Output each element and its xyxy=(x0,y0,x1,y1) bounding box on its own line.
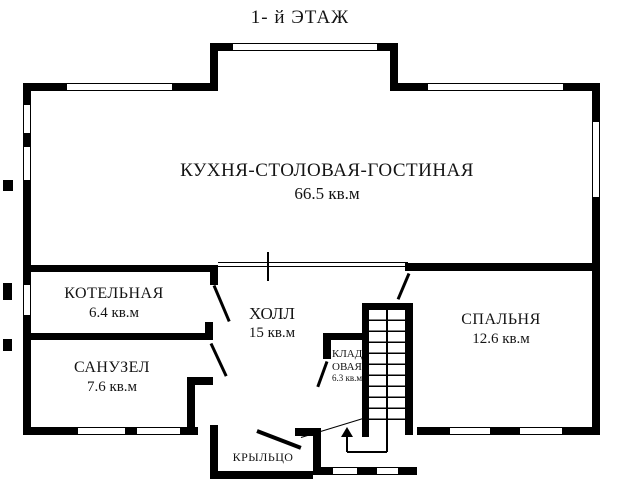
storage-west-wall xyxy=(323,333,331,359)
bay-side-wall-left xyxy=(210,43,218,91)
room-label-porch: КРЫЛЬЦО xyxy=(213,450,313,465)
left-window-3 xyxy=(23,285,31,315)
room-area-hall: 15 кв.м xyxy=(222,324,322,343)
floor-plan: 1- й ЭТАЖ xyxy=(0,0,633,494)
vestibule-bottom-wall xyxy=(313,467,417,475)
room-label-storage: КЛАД ОВАЯ 6.3 кв.м xyxy=(332,348,378,384)
room-area-storage: 6.3 кв.м xyxy=(332,373,378,383)
bathroom-door-leaf xyxy=(210,343,228,377)
room-name-boiler: КОТЕЛЬНАЯ xyxy=(34,284,194,304)
stairs-up-arrow-icon xyxy=(341,427,353,437)
room-area-bathroom: 7.6 кв.м xyxy=(32,378,192,397)
room-area-kitchen: 66.5 кв.м xyxy=(147,183,507,204)
bathroom-door-jamb xyxy=(205,322,213,340)
bedroom-door-leaf xyxy=(397,273,411,300)
exterior-tick-1 xyxy=(3,180,13,191)
left-wall xyxy=(23,83,31,435)
bay-side-wall-right xyxy=(390,43,398,91)
room-label-hall: ХОЛЛ 15 кв.м xyxy=(222,303,322,343)
boiler-door-jamb xyxy=(210,265,218,285)
room-name-porch: КРЫЛЬЦО xyxy=(213,450,313,465)
exterior-tick-2 xyxy=(3,283,12,300)
room-name-hall: ХОЛЛ xyxy=(222,303,322,324)
stair-walk-line-bottom xyxy=(347,451,387,453)
room-name-bathroom: САНУЗЕЛ xyxy=(32,358,192,378)
room-name-bedroom: СПАЛЬНЯ xyxy=(421,310,581,330)
left-window-2 xyxy=(23,147,31,180)
exterior-tick-3 xyxy=(3,339,12,351)
room-label-boiler: КОТЕЛЬНАЯ 6.4 кв.м xyxy=(34,284,194,323)
bathroom-window-1 xyxy=(78,427,125,435)
bathroom-top-wall xyxy=(31,333,213,340)
stair-walk-line xyxy=(386,310,388,452)
porch-bottom-wall xyxy=(210,471,313,479)
room-name-storage-line1: КЛАД xyxy=(332,348,378,361)
left-window-1 xyxy=(23,105,31,133)
bathroom-window-2 xyxy=(137,427,180,435)
room-label-kitchen: КУХНЯ-СТОЛОВАЯ-ГОСТИНАЯ 66.5 кв.м xyxy=(147,159,507,204)
kitchen-hall-divider xyxy=(218,262,408,267)
bottom-wall-bedroom xyxy=(417,427,600,435)
room-area-bedroom: 12.6 кв.м xyxy=(421,330,581,349)
vestibule-window-1 xyxy=(333,467,357,475)
bedroom-window-2 xyxy=(520,427,562,435)
room-name-kitchen: КУХНЯ-СТОЛОВАЯ-ГОСТИНАЯ xyxy=(147,159,507,183)
storage-door-leaf xyxy=(316,361,328,387)
right-window xyxy=(592,122,600,197)
room-label-bedroom: СПАЛЬНЯ 12.6 кв.м xyxy=(421,310,581,349)
page-title: 1- й ЭТАЖ xyxy=(180,6,420,30)
vestibule-window-2 xyxy=(377,467,398,475)
top-window-right xyxy=(428,83,563,91)
section-mark xyxy=(267,252,269,281)
room-name-storage-line2: ОВАЯ xyxy=(332,361,378,374)
vestibule-left-wall xyxy=(313,428,321,471)
bay-window xyxy=(233,43,377,51)
bedroom-window-1 xyxy=(450,427,490,435)
boiler-top-wall xyxy=(31,265,218,272)
stairs-up-arrow-stem xyxy=(346,436,348,452)
room-area-boiler: 6.4 кв.м xyxy=(34,304,194,323)
bedroom-north-wall xyxy=(405,263,600,271)
stair-right-wall xyxy=(405,303,413,435)
room-label-bathroom: САНУЗЕЛ 7.6 кв.м xyxy=(32,358,192,397)
top-window-left xyxy=(67,83,172,91)
